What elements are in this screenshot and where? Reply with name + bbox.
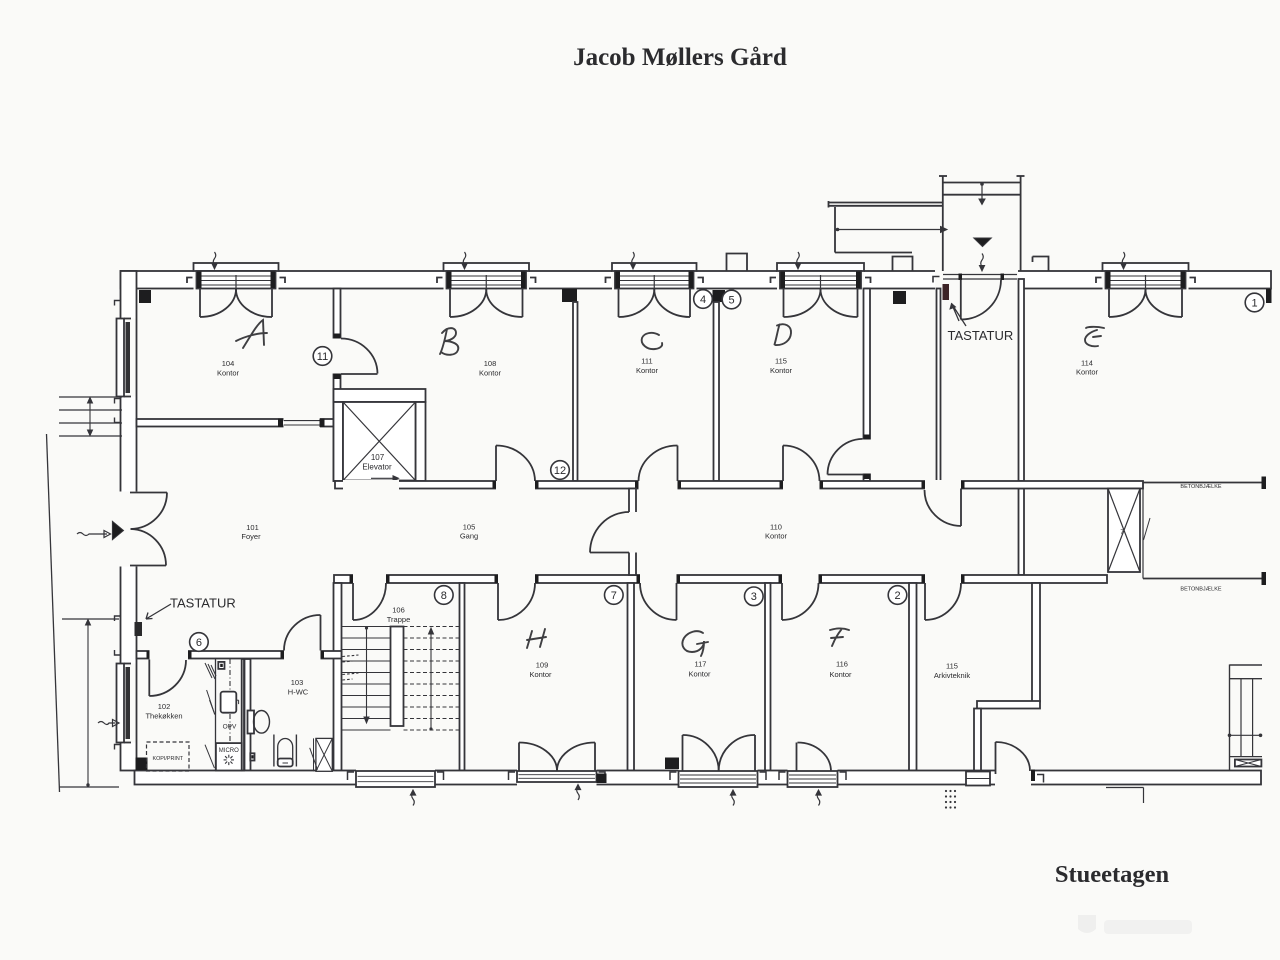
svg-text:Kontor: Kontor [217, 369, 240, 378]
svg-text:Kontor: Kontor [529, 670, 552, 679]
svg-text:Elevator: Elevator [362, 463, 392, 472]
svg-text:114: 114 [1081, 359, 1093, 368]
svg-text:102: 102 [158, 702, 171, 711]
svg-text:H-WC: H-WC [288, 687, 309, 696]
svg-text:Gang: Gang [460, 532, 478, 541]
svg-text:4: 4 [700, 294, 706, 306]
svg-text:Kontor: Kontor [770, 366, 793, 375]
svg-text:3: 3 [751, 591, 757, 603]
svg-text:108: 108 [484, 359, 497, 368]
svg-text:Arkivteknik: Arkivteknik [934, 671, 971, 680]
svg-text:Jacob Møllers Gård: Jacob Møllers Gård [573, 44, 787, 71]
svg-text:Foyer: Foyer [241, 532, 261, 541]
svg-text:106: 106 [392, 606, 405, 615]
svg-text:116: 116 [836, 660, 848, 669]
svg-text:Kontor: Kontor [1076, 368, 1099, 377]
svg-text:Thekøkken: Thekøkken [145, 711, 182, 720]
svg-text:5: 5 [728, 294, 734, 306]
svg-text:Stueetagen: Stueetagen [1055, 861, 1170, 888]
svg-text:103: 103 [291, 678, 304, 687]
svg-text:MICRO: MICRO [219, 748, 239, 754]
svg-text:111: 111 [641, 357, 652, 366]
svg-text:Kontor: Kontor [479, 369, 502, 378]
svg-text:Kontor: Kontor [688, 670, 711, 679]
svg-text:115: 115 [775, 357, 787, 366]
svg-text:KOPI/PRINT: KOPI/PRINT [153, 756, 184, 762]
svg-text:Kontor: Kontor [829, 670, 852, 679]
svg-text:BETONBJÆLKE: BETONBJÆLKE [1180, 587, 1221, 593]
svg-text:Kontor: Kontor [636, 366, 659, 375]
svg-text:6: 6 [196, 637, 202, 649]
svg-text:110: 110 [770, 523, 782, 532]
svg-text:Kontor: Kontor [765, 532, 788, 541]
svg-text:7: 7 [611, 590, 617, 602]
svg-text:Trappe: Trappe [387, 615, 411, 624]
svg-text:101: 101 [246, 523, 259, 532]
svg-text:TASTATUR: TASTATUR [948, 328, 1014, 343]
svg-text:117: 117 [695, 660, 707, 669]
svg-text:104: 104 [222, 359, 235, 368]
svg-text:OPV: OPV [223, 724, 237, 731]
svg-text:12: 12 [554, 465, 566, 477]
svg-text:TASTATUR: TASTATUR [170, 596, 236, 611]
svg-text:115: 115 [946, 662, 958, 671]
svg-text:11: 11 [317, 351, 328, 363]
svg-text:BETONBJÆLKE: BETONBJÆLKE [1180, 484, 1221, 490]
svg-text:8: 8 [441, 590, 447, 602]
svg-text:1: 1 [1251, 297, 1257, 309]
svg-text:2: 2 [894, 590, 900, 602]
svg-text:109: 109 [536, 661, 549, 670]
svg-text:107: 107 [371, 453, 385, 462]
svg-text:105: 105 [463, 523, 476, 532]
